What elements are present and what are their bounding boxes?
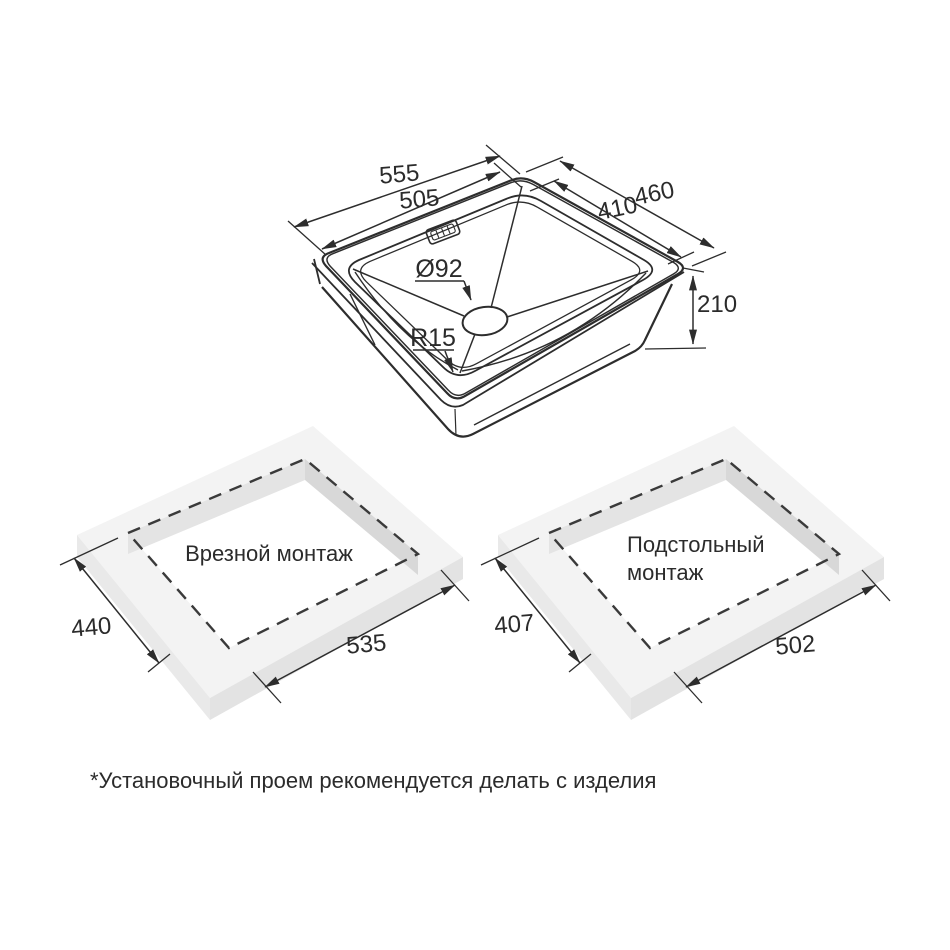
countertop-undermount: Подстольный монтаж 407 502 (481, 426, 890, 720)
drain-diameter-label: Ø92 (415, 255, 462, 283)
dimension-555-label: 555 (378, 159, 420, 189)
countertop-inset-mount: Врезной монтаж 440 535 (60, 426, 469, 720)
dimension-407-label: 407 (493, 609, 535, 639)
undermount-label-line1: Подстольный (627, 532, 765, 557)
drain-diameter-callout: Ø92 (415, 255, 471, 300)
inset-mount-label: Врезной монтаж (185, 541, 353, 566)
dimension-505-label: 505 (398, 184, 440, 214)
drain-hole (461, 304, 509, 338)
sink-body (312, 259, 684, 437)
dimension-460-label: 460 (632, 176, 677, 211)
dimension-210: 210 (645, 268, 737, 349)
diagram-page: 555 505 460 410 210 (0, 0, 950, 950)
dimension-440-label: 440 (70, 612, 112, 642)
product-dimensions-diagram: 555 505 460 410 210 (0, 0, 950, 950)
corner-radius-label: R15 (410, 324, 456, 352)
undermount-label-line2: монтаж (627, 560, 704, 585)
dimension-410-label: 410 (595, 191, 640, 226)
footnote: *Установочный проем рекомендуется делать… (90, 768, 656, 793)
dimension-210-label: 210 (697, 291, 737, 318)
sink-isometric-view: 555 505 460 410 210 (288, 145, 737, 437)
dimension-502-label: 502 (774, 630, 816, 660)
overflow-logo-plate (425, 219, 460, 244)
dimension-535-label: 535 (345, 629, 387, 659)
